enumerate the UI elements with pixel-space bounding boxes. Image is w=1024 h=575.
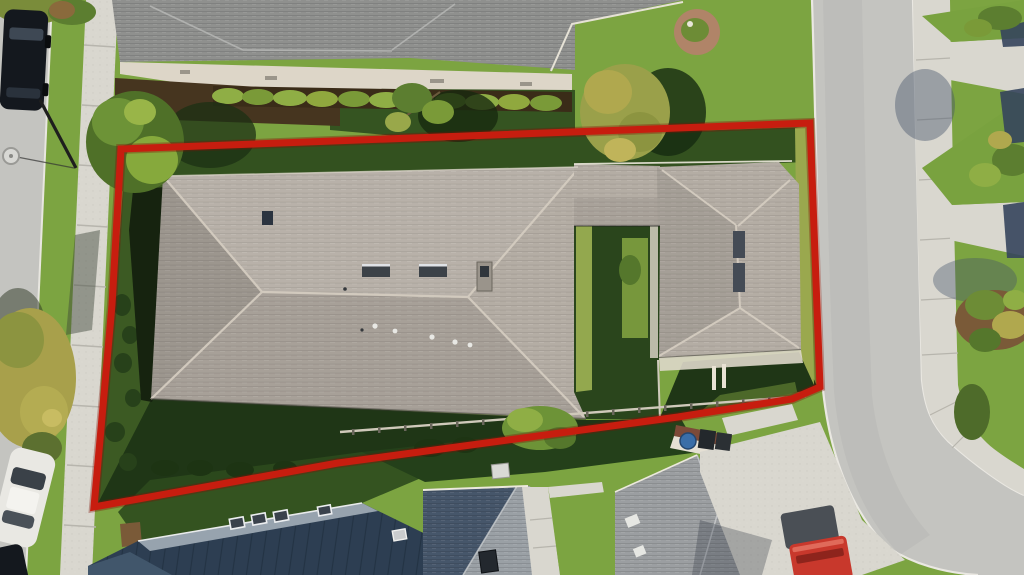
connector-shade <box>574 198 660 226</box>
lamp-head-center <box>9 154 13 158</box>
roof-vent-edge <box>419 264 447 267</box>
courtyard-shrub <box>619 255 641 285</box>
courtyard <box>574 226 660 420</box>
suv-rear-window <box>6 87 40 99</box>
bed-glint <box>687 21 693 27</box>
aerial-photo <box>0 0 1024 575</box>
wing-ridge-vent <box>733 231 745 258</box>
suv-wheel <box>45 35 52 48</box>
blue-trash-bin <box>680 433 696 449</box>
bed-plant <box>681 18 709 42</box>
corner-green-tree <box>86 91 184 193</box>
roof-vent <box>419 265 447 277</box>
trash-bin <box>698 429 716 450</box>
aerial-photo-canvas <box>0 0 1024 575</box>
suv-wheel <box>42 83 49 96</box>
roof-vent <box>362 265 390 277</box>
courtyard-lawn-strip <box>622 238 648 338</box>
chimney-flue <box>480 266 489 277</box>
shrub <box>954 384 990 440</box>
skylight <box>262 211 273 225</box>
wing-ridge-vent <box>733 263 745 292</box>
tree-shadow <box>895 69 955 141</box>
b2-chimney <box>479 550 499 573</box>
dark-suv <box>0 9 53 111</box>
lanai-post <box>722 364 726 388</box>
lanai-post <box>712 366 716 390</box>
trash-bin <box>715 432 732 451</box>
ac-unit <box>491 463 509 479</box>
suv-windshield <box>9 27 44 41</box>
courtyard-wall <box>650 226 658 358</box>
roof-vent-edge <box>362 264 390 267</box>
courtyard-lawn-sunlit <box>576 226 592 392</box>
